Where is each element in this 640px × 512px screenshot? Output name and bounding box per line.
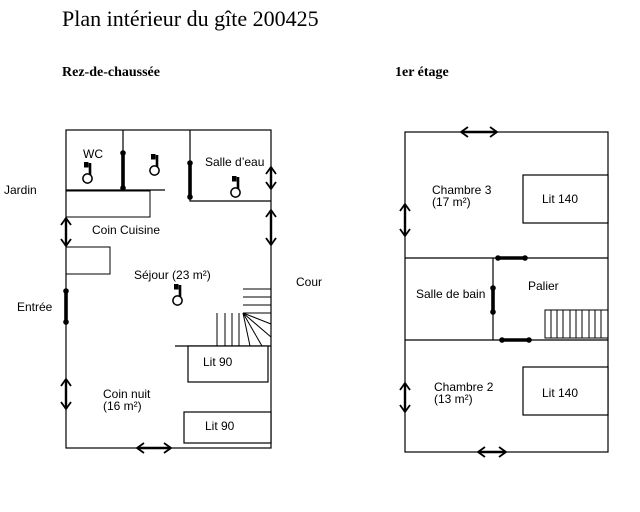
label-lit90-top: Lit 90 xyxy=(203,356,232,368)
label-entree: Entrée xyxy=(17,301,52,313)
ground-floor-walls xyxy=(66,130,271,448)
chambre2-door-opening-icon xyxy=(499,337,532,343)
label-cour: Cour xyxy=(296,276,322,288)
label-salle-de-bain: Salle de bain xyxy=(416,288,485,300)
wc-door-opening-icon xyxy=(120,150,126,191)
label-palier: Palier xyxy=(528,280,559,292)
label-coin-nuit-area: (16 m²) xyxy=(103,400,142,412)
chambre3-door-opening-icon xyxy=(495,255,528,261)
label-salle-deau: Salle d’eau xyxy=(205,156,264,168)
floor-plan-drawing xyxy=(0,0,640,512)
label-lit140-bottom: Lit 140 xyxy=(542,387,578,399)
toilet-icon xyxy=(150,154,159,175)
straight-stairs-icon xyxy=(545,310,608,338)
label-lit90-bottom: Lit 90 xyxy=(205,420,234,432)
label-coin-cuisine: Coin Cuisine xyxy=(92,224,160,236)
label-chambre2-area: (13 m²) xyxy=(434,393,473,405)
label-sejour: Séjour (23 m²) xyxy=(134,269,211,281)
winder-stairs-icon xyxy=(217,289,271,346)
entrance-door-opening-icon xyxy=(63,288,69,325)
ground-floor-windows xyxy=(66,167,271,448)
label-jardin: Jardin xyxy=(4,184,37,196)
label-lit140-top: Lit 140 xyxy=(542,193,578,205)
label-wc: WC xyxy=(83,148,103,160)
first-floor-beds xyxy=(523,175,608,415)
bathroom-door-opening-icon xyxy=(490,285,496,315)
floor-plan-page: Plan intérieur du gîte 200425 Rez-de-cha… xyxy=(0,0,640,512)
toilet-icon xyxy=(83,162,92,183)
shower-room-door-opening-icon xyxy=(187,160,193,200)
toilet-icon xyxy=(231,176,240,197)
toilet-icon xyxy=(173,284,182,305)
label-chambre3-area: (17 m²) xyxy=(432,196,471,208)
